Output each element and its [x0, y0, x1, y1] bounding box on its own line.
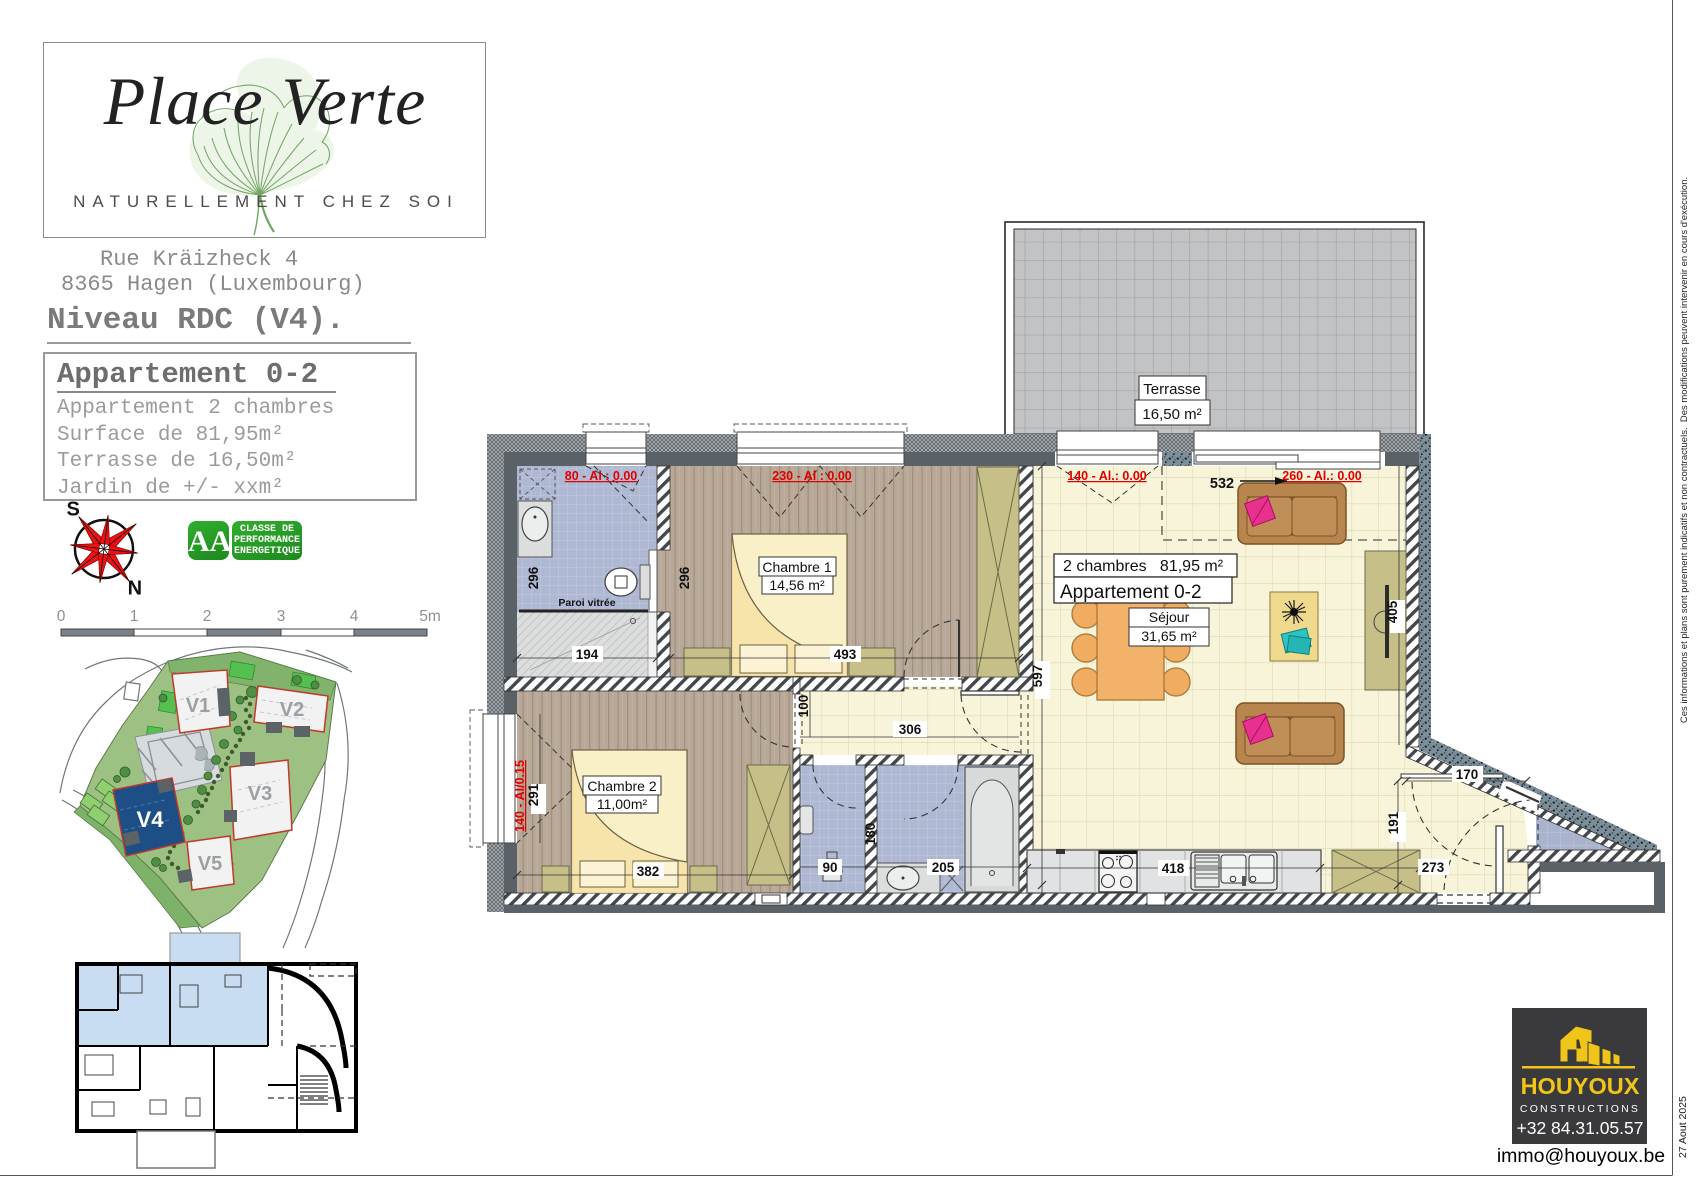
svg-text:Chambre 1: Chambre 1 [762, 559, 831, 575]
svg-text:2 chambres 81,95 m²: 2 chambres 81,95 m² [1063, 558, 1224, 575]
svg-text:194: 194 [576, 647, 599, 662]
svg-text:V5: V5 [198, 853, 222, 875]
svg-text:V3: V3 [248, 783, 272, 805]
svg-text:140 - Al/0.15: 140 - Al/0.15 [513, 760, 527, 832]
svg-text:Terrasse: Terrasse [1143, 381, 1201, 398]
svg-text:Séjour: Séjour [1149, 609, 1190, 625]
svg-text:31,65 m²: 31,65 m² [1141, 628, 1197, 644]
svg-text:306: 306 [899, 722, 922, 737]
svg-text:3: 3 [277, 608, 286, 625]
svg-text:296: 296 [526, 566, 541, 589]
svg-text:Appartement 0-2: Appartement 0-2 [1060, 582, 1202, 603]
svg-text:291: 291 [526, 783, 541, 806]
svg-text:V2: V2 [280, 699, 304, 721]
svg-text:532: 532 [1210, 476, 1234, 492]
svg-text:80 - Al : 0.00: 80 - Al : 0.00 [565, 469, 638, 483]
svg-text:405: 405 [1385, 600, 1400, 623]
svg-text:260 - Al.: 0.00: 260 - Al.: 0.00 [1282, 469, 1361, 483]
svg-text:1: 1 [130, 608, 139, 625]
svg-text:V4: V4 [137, 807, 165, 832]
svg-text:16,50 m²: 16,50 m² [1142, 406, 1201, 423]
svg-text:4: 4 [350, 608, 359, 625]
svg-text:170: 170 [1456, 767, 1479, 782]
svg-text:Ces informations et plans sont: Ces informations et plans sont purement … [1679, 177, 1690, 723]
svg-text:CONSTRUCTIONS: CONSTRUCTIONS [1520, 1103, 1640, 1115]
svg-text:191: 191 [1386, 811, 1401, 834]
svg-text:205: 205 [932, 860, 955, 875]
svg-text:V1: V1 [186, 695, 210, 717]
svg-text:418: 418 [1162, 861, 1185, 876]
svg-text:493: 493 [834, 647, 857, 662]
svg-text:2: 2 [203, 608, 212, 625]
svg-text:0: 0 [57, 608, 66, 625]
svg-text:296: 296 [677, 566, 692, 589]
svg-text:597: 597 [1030, 665, 1045, 688]
svg-text:5m: 5m [419, 608, 441, 625]
svg-text:Paroi vitrée: Paroi vitrée [558, 597, 615, 609]
svg-text:Chambre 2: Chambre 2 [587, 778, 656, 794]
svg-text:14,56 m²: 14,56 m² [769, 577, 825, 593]
svg-text:230 - Al : 0.00: 230 - Al : 0.00 [772, 469, 851, 483]
svg-text:273: 273 [1422, 860, 1445, 875]
svg-text:90: 90 [822, 860, 837, 875]
svg-text:N: N [128, 577, 142, 599]
svg-text:27 Aout 2025: 27 Aout 2025 [1677, 1096, 1689, 1158]
svg-text:382: 382 [637, 864, 660, 879]
svg-text:140 - Al.: 0.00: 140 - Al.: 0.00 [1067, 469, 1146, 483]
svg-text:11,00m²: 11,00m² [597, 796, 648, 812]
svg-text:+32 84.31.05.57: +32 84.31.05.57 [1517, 1118, 1644, 1138]
svg-text:HOUYOUX: HOUYOUX [1521, 1073, 1640, 1099]
svg-text:100: 100 [796, 695, 811, 718]
svg-text:immo@houyoux.be: immo@houyoux.be [1497, 1145, 1665, 1167]
svg-text:180: 180 [863, 823, 878, 846]
